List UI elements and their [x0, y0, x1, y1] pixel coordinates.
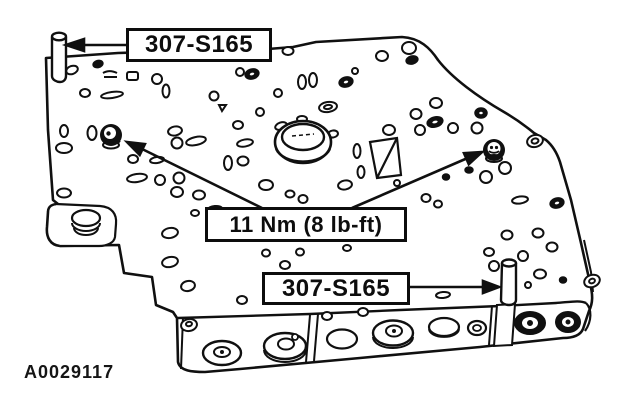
side-plug-boss [56, 204, 116, 246]
callout-box-bottom-pin: 307-S165 [262, 272, 410, 305]
alignment-pin-top [52, 33, 66, 82]
valve-body-line-art [0, 0, 640, 402]
callout-arrow-top-pin [66, 39, 126, 51]
bolt-right [483, 139, 505, 162]
callout-box-torque: 11 Nm (8 lb-ft) [205, 207, 407, 242]
figure-id-code: A0029117 [24, 362, 114, 383]
center-bore [275, 121, 331, 163]
callout-label-bottom-pin: 307-S165 [282, 275, 390, 303]
valve-body-figure: 307-S165 11 Nm (8 lb-ft) 307-S165 A00291… [0, 0, 640, 402]
callout-box-top-pin: 307-S165 [126, 28, 272, 62]
callout-label-top-pin: 307-S165 [145, 31, 253, 59]
bolt-left [100, 124, 122, 149]
callout-label-torque: 11 Nm (8 lb-ft) [230, 212, 383, 238]
